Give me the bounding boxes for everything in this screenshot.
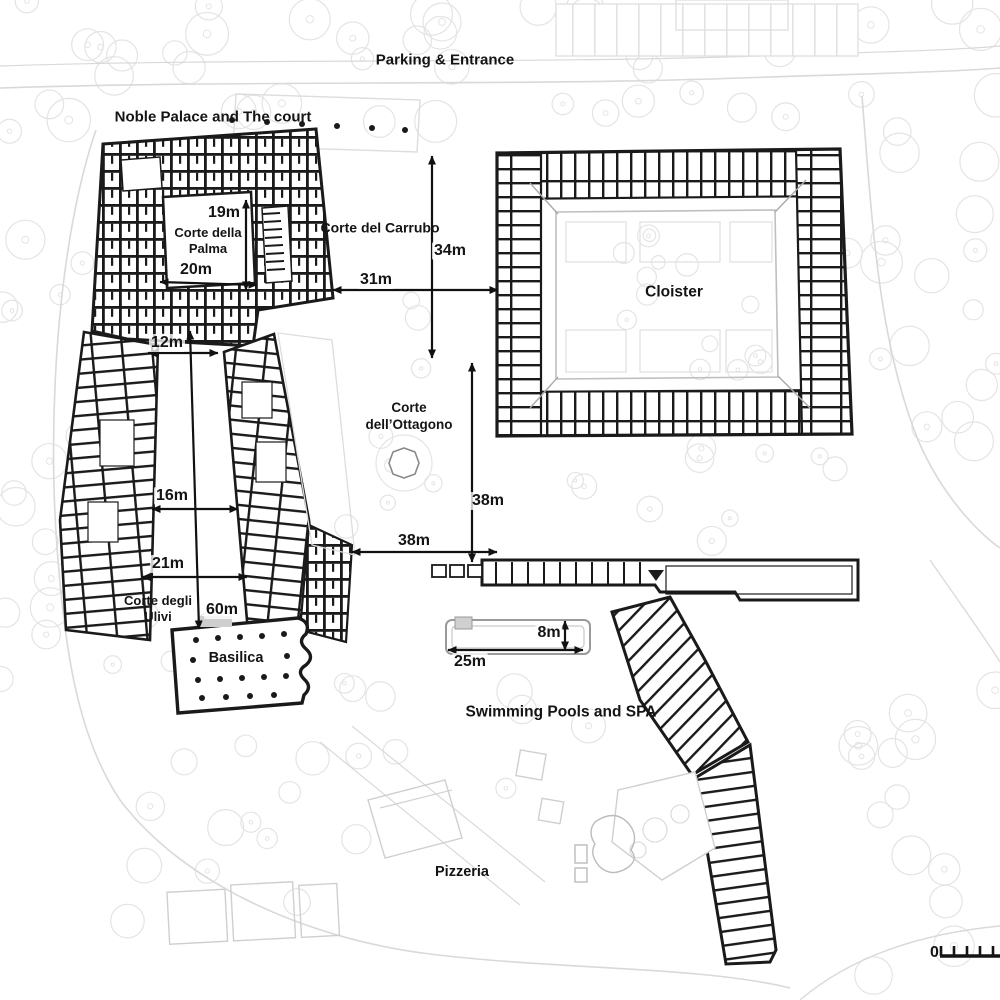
scale-bar: 0 [930, 944, 1000, 961]
swimming-pool [446, 617, 590, 654]
scale-bar-zero: 0 [930, 944, 939, 961]
basilica-building [172, 616, 311, 713]
spa-building [612, 597, 776, 964]
west-wing-building [60, 332, 158, 640]
noble-palace-building [92, 129, 333, 346]
dimension-60m [190, 331, 199, 629]
site-plan: 0 19m20m34m31m12m16m21m60m38m38m8m25mPar… [0, 0, 1000, 1000]
outbuildings [167, 750, 635, 944]
east-wing-building [224, 333, 355, 642]
plan-drawing: 0 [0, 0, 1000, 1000]
south-range-building [432, 560, 858, 600]
cloister-building [497, 149, 852, 436]
parking-area [556, 0, 858, 56]
